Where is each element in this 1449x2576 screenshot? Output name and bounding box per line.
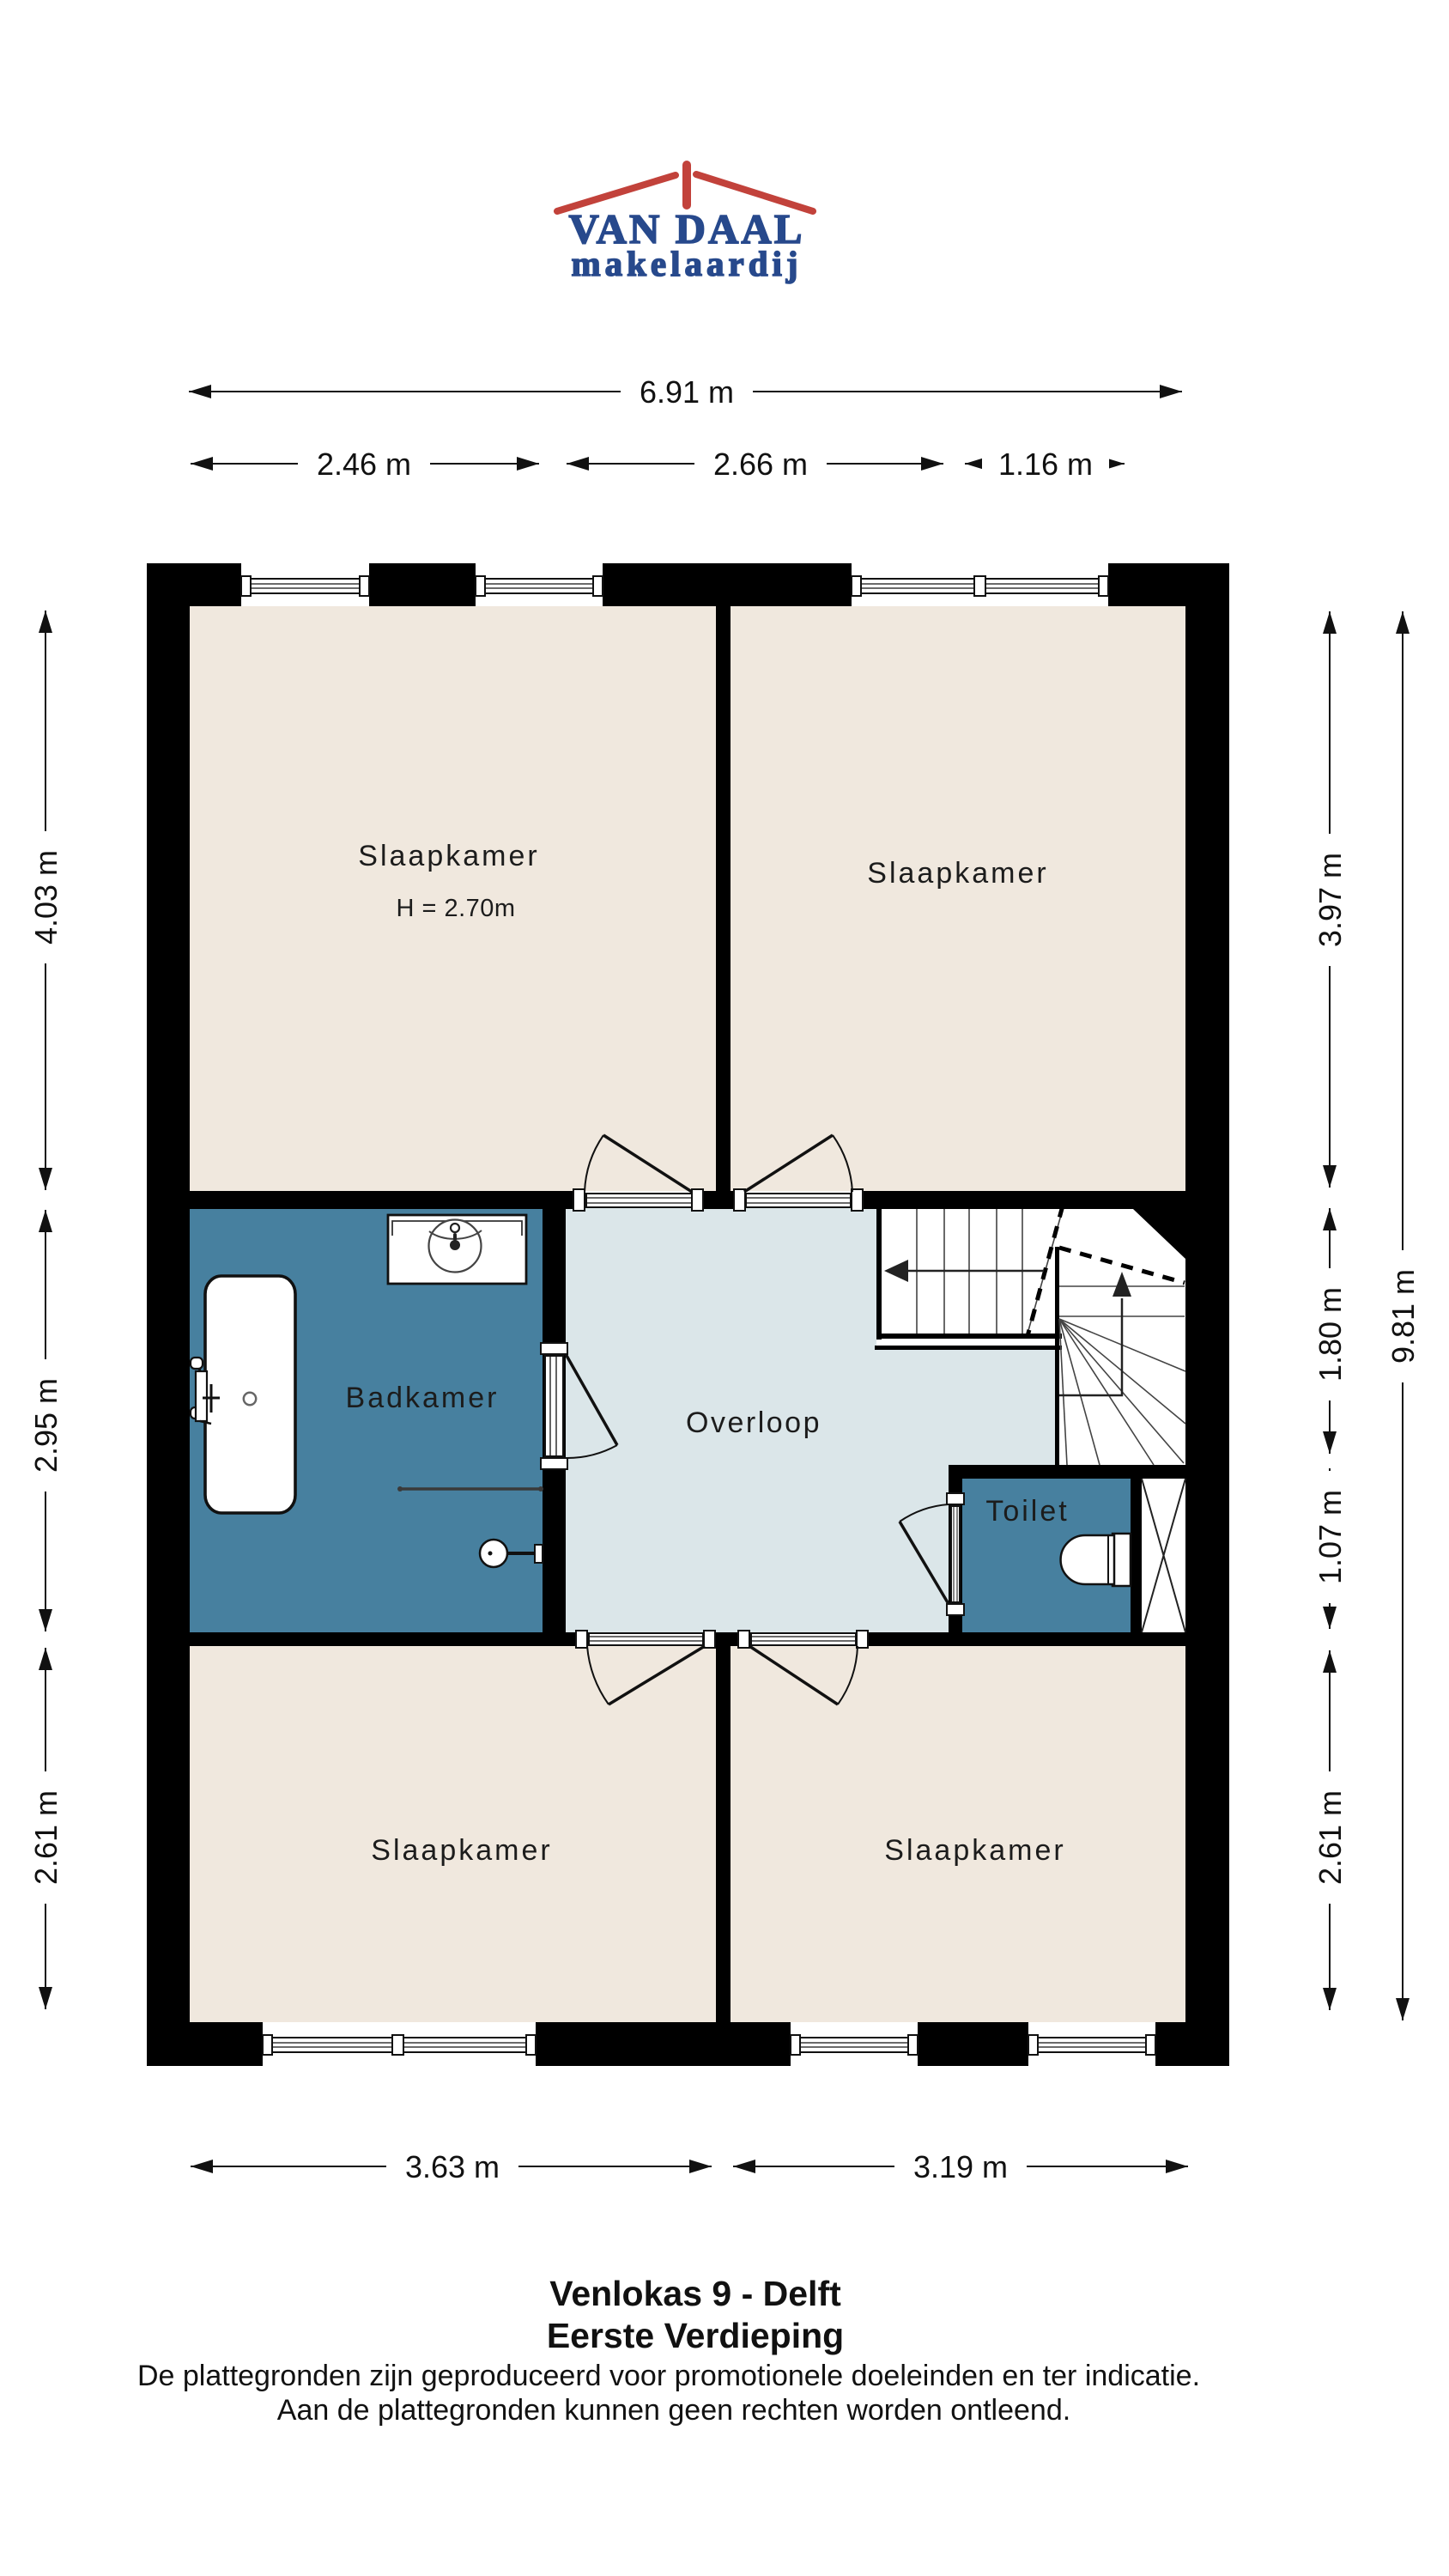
svg-text:2.46 m: 2.46 m [317,447,411,482]
svg-text:2.95 m: 2.95 m [28,1378,64,1473]
svg-text:H = 2.70m: H = 2.70m [396,895,515,922]
svg-text:Overloop: Overloop [686,1406,822,1439]
svg-text:1.07 m: 1.07 m [1313,1490,1348,1584]
svg-text:3.97 m: 3.97 m [1313,853,1348,947]
svg-text:Slaapkamer: Slaapkamer [867,857,1048,890]
svg-text:Aan de plattegronden kunnen ge: Aan de plattegronden kunnen geen rechten… [277,2394,1070,2427]
svg-text:1.16 m: 1.16 m [998,447,1093,482]
svg-text:2.61 m: 2.61 m [28,1790,64,1885]
svg-text:4.03 m: 4.03 m [28,850,64,945]
svg-text:3.19 m: 3.19 m [913,2149,1008,2184]
svg-text:Slaapkamer: Slaapkamer [884,1834,1065,1867]
svg-text:2.66 m: 2.66 m [713,447,808,482]
svg-text:1.80 m: 1.80 m [1313,1287,1348,1382]
svg-text:Toilet: Toilet [985,1495,1069,1528]
svg-text:makelaardij: makelaardij [571,244,802,283]
svg-text:6.91 m: 6.91 m [640,374,734,410]
svg-text:9.81 m: 9.81 m [1385,1269,1421,1364]
svg-text:2.61 m: 2.61 m [1313,1790,1348,1885]
svg-text:Eerste Verdieping: Eerste Verdieping [547,2316,844,2355]
svg-text:Venlokas 9 - Delft: Venlokas 9 - Delft [549,2274,841,2313]
svg-text:Badkamer: Badkamer [346,1382,500,1414]
svg-text:De plattegronden zijn geproduc: De plattegronden zijn geproduceerd voor … [137,2360,1200,2392]
svg-text:Slaapkamer: Slaapkamer [371,1834,552,1867]
svg-text:Slaapkamer: Slaapkamer [358,840,539,872]
svg-text:3.63 m: 3.63 m [405,2149,500,2184]
